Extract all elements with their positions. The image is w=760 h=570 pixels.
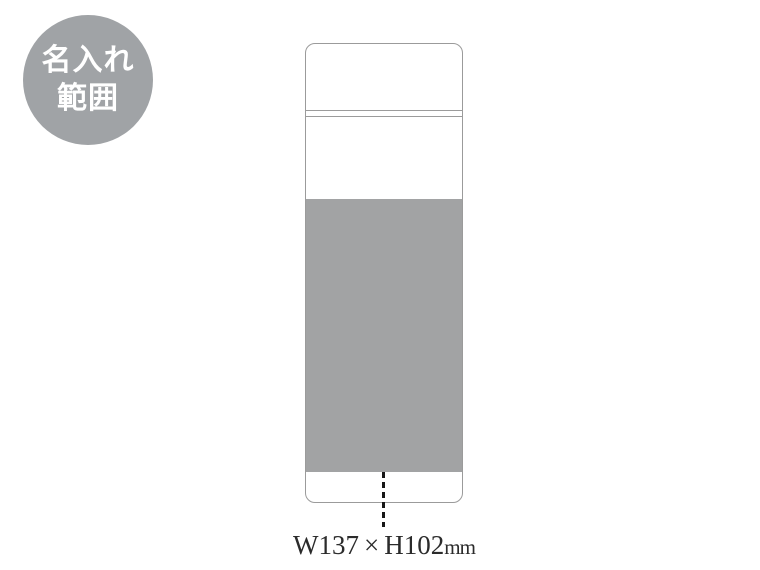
- dimension-unit: mm: [444, 535, 475, 559]
- cap-seam-line-lower: [306, 116, 462, 117]
- print-area-badge: 名入れ 範囲: [23, 15, 153, 145]
- dimension-width: W137: [293, 530, 359, 560]
- multiply-sign: ×: [364, 530, 379, 560]
- cap-seam-line-upper: [306, 110, 462, 111]
- badge-label-line1: 名入れ: [42, 42, 135, 80]
- dimension-height: H102: [384, 530, 444, 560]
- bottle-outline: [305, 43, 463, 503]
- product-print-area-diagram: 名入れ 範囲 W137×H102mm: [0, 0, 760, 570]
- dimension-label: W137×H102mm: [284, 530, 484, 562]
- badge-label-line2: 範囲: [57, 80, 119, 118]
- dimension-leader-line: [382, 472, 385, 527]
- print-area-zone: [306, 199, 462, 472]
